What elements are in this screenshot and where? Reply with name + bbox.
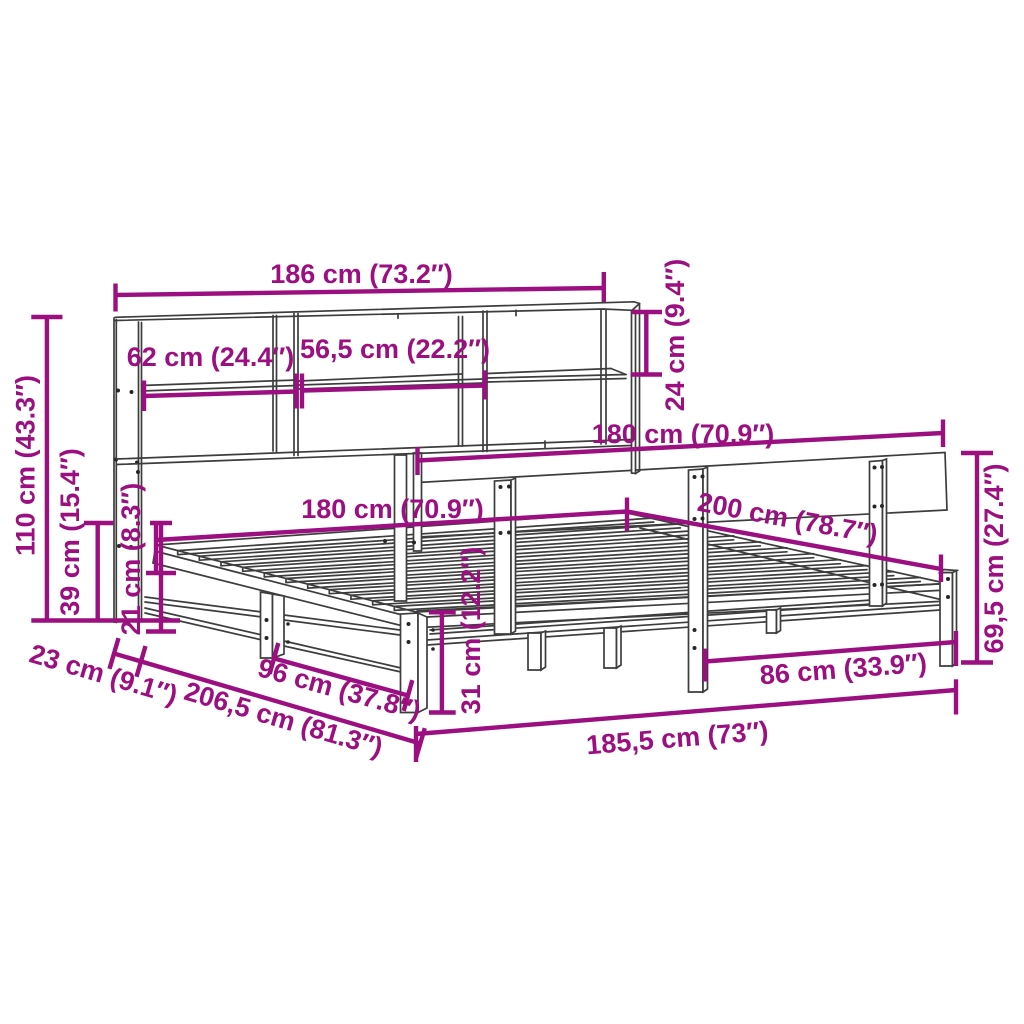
svg-text:56,5 cm (22.2″): 56,5 cm (22.2″): [300, 334, 490, 364]
svg-text:110 cm (43.3″): 110 cm (43.3″): [11, 375, 41, 556]
svg-text:21 cm (8.3″): 21 cm (8.3″): [116, 483, 146, 636]
svg-text:180 cm (70.9″): 180 cm (70.9″): [592, 419, 775, 449]
svg-text:39 cm (15.4″): 39 cm (15.4″): [55, 448, 85, 616]
svg-text:180 cm (70.9″): 180 cm (70.9″): [301, 494, 484, 524]
svg-text:62 cm (24.4″): 62 cm (24.4″): [127, 342, 295, 372]
svg-text:69,5 cm (27.4″): 69,5 cm (27.4″): [979, 463, 1009, 653]
svg-text:186 cm (73.2″): 186 cm (73.2″): [270, 259, 453, 289]
svg-text:31 cm (12.2″): 31 cm (12.2″): [456, 547, 486, 715]
svg-text:24 cm (9.4″): 24 cm (9.4″): [660, 259, 690, 412]
